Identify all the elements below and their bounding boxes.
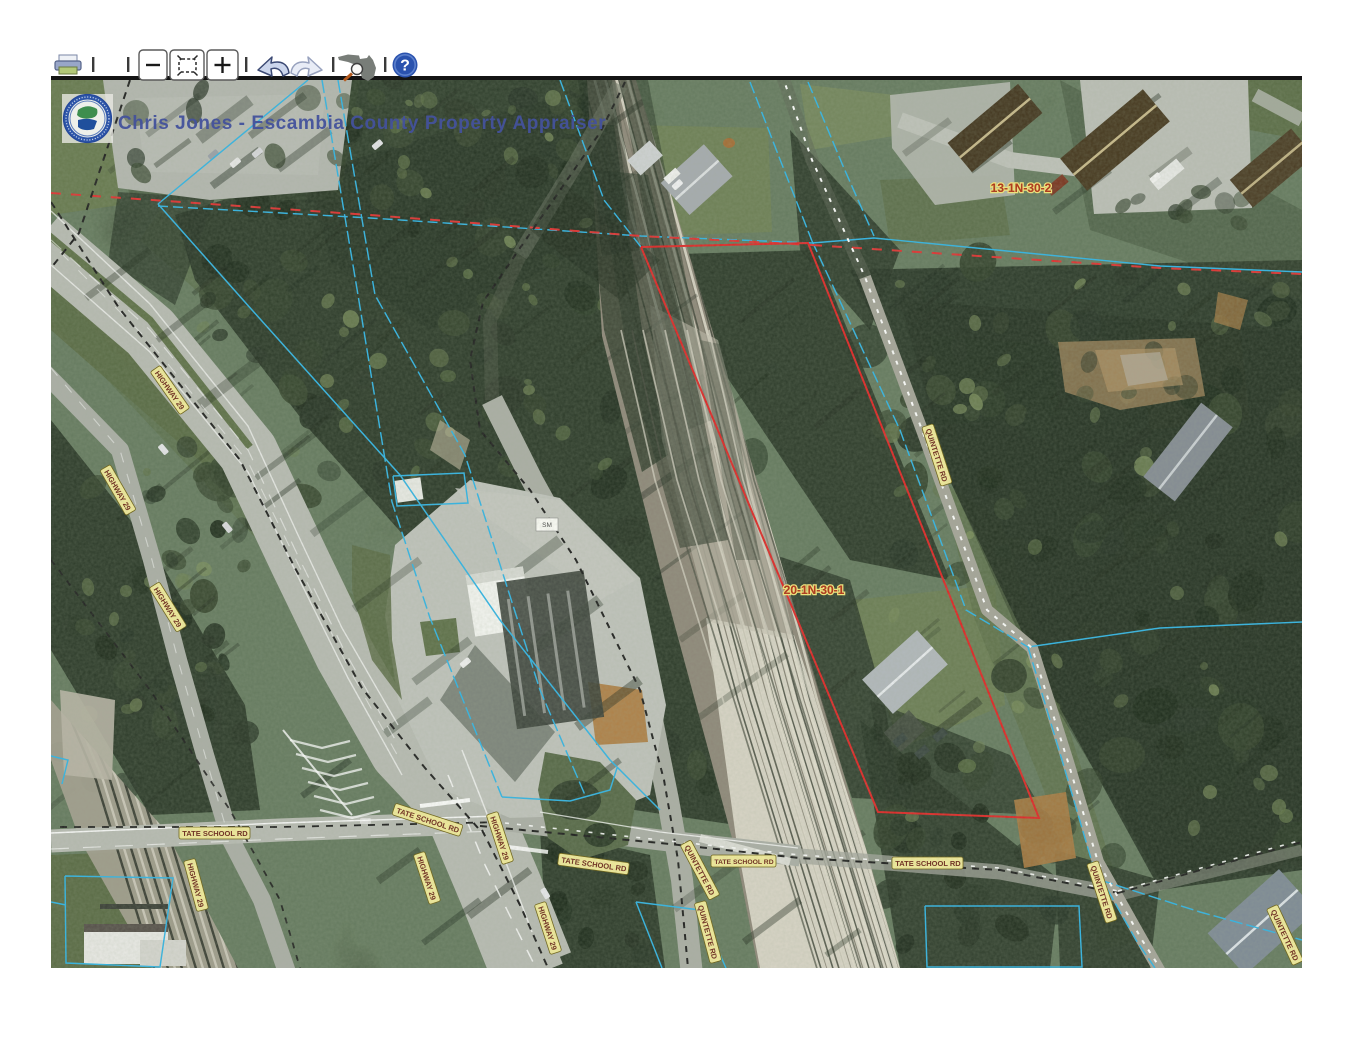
svg-text:?: ? — [400, 58, 410, 75]
svg-text:Chris Jones - Escambia County: Chris Jones - Escambia County Property A… — [118, 113, 606, 134]
